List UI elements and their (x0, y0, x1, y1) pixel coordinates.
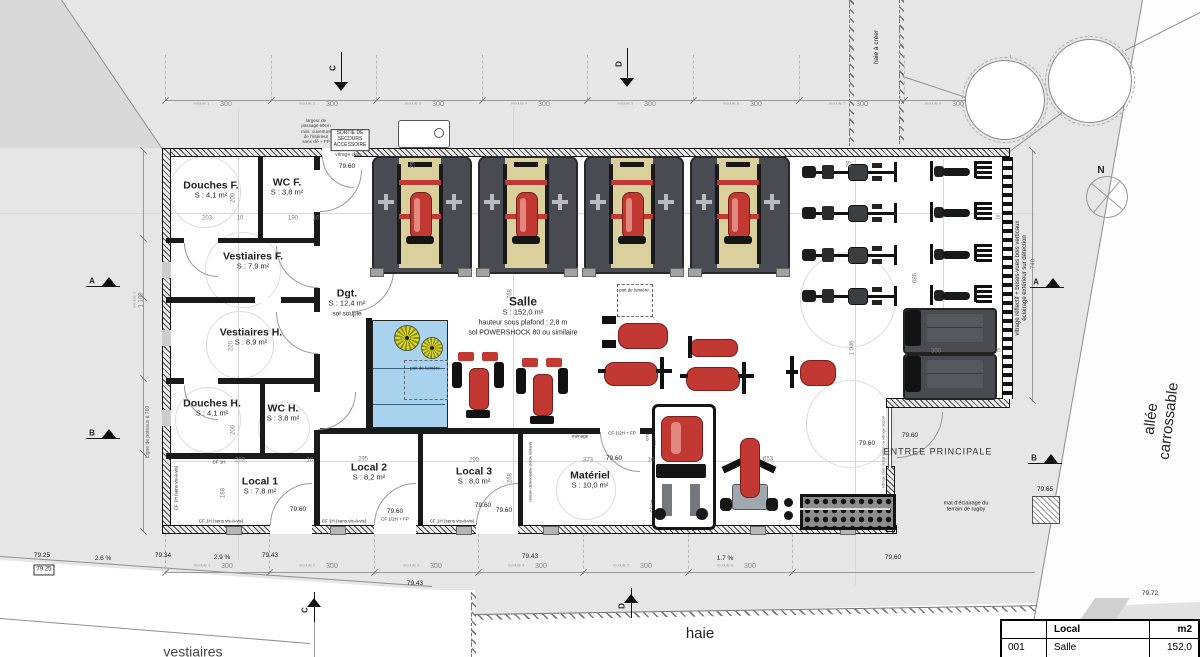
plan-label: 79.60 (387, 508, 403, 516)
rowing-machine-footpad (872, 246, 882, 251)
plan-label: 203 (202, 215, 212, 222)
module-grid-line (688, 534, 690, 574)
room-area: S : 10,0 m² (570, 482, 610, 491)
small-bench-frame (786, 370, 798, 374)
exercise-bike-handle (976, 285, 992, 288)
rowing-machine (822, 248, 834, 262)
room-area: S : 152,0 m² (468, 308, 577, 317)
incline-machine-frame (602, 316, 616, 324)
plan-label: 10 (237, 215, 244, 222)
platform-foot (564, 268, 578, 277)
plan-label: 79.43 (407, 580, 423, 588)
room-area: S : 12,4 m² (329, 300, 366, 309)
plan-label: 10 (307, 457, 314, 464)
weight-bench-pad (732, 198, 738, 232)
flat-bench-frame (656, 369, 672, 373)
legend-row-area: 152,0 (1149, 639, 1192, 656)
plan-label: 79.72 (1142, 590, 1158, 598)
section-line (314, 592, 315, 622)
window-sill (750, 526, 766, 535)
incline-machine-frame (602, 340, 616, 348)
exercise-bike-handle (976, 166, 992, 169)
rowing-machine-flywheel (848, 205, 868, 222)
rowing-machine-front (894, 203, 897, 223)
flat-bench-frame (660, 357, 664, 389)
exercise-bike-handle (976, 207, 992, 210)
leg-press-seat (661, 416, 703, 462)
window-sill (543, 526, 559, 535)
brise-vue-wall (1002, 157, 1013, 399)
legend-header-m2: m2 (1149, 621, 1192, 638)
exercise-bike-frame (942, 292, 970, 300)
module-label: module 3 (403, 564, 419, 569)
room-label: Local 2S : 8,2 m² (351, 461, 387, 482)
room-label: Local 1S : 7,8 m² (242, 475, 278, 496)
flat-bench-pad (604, 362, 658, 386)
plan-label: 188 (220, 488, 227, 498)
treadmill-belt-line (927, 327, 983, 328)
flat-bench-foot (680, 374, 688, 378)
rowing-machine-footpad (872, 163, 882, 168)
room-area: S : 8,2 m² (351, 474, 387, 483)
section-letter: B (89, 428, 95, 437)
power-rack-crossmember (514, 162, 538, 167)
section-marker (307, 598, 321, 607)
section-letter: D (617, 603, 626, 609)
plan-label: 29 (410, 162, 417, 169)
rowing-machine-front (894, 162, 897, 182)
window-sill (226, 526, 242, 535)
module-label: module 4 (511, 102, 527, 107)
press-machine-arm (558, 368, 568, 394)
room-note: sol souple (329, 311, 366, 319)
room-label: MatérielS : 10,0 m² (570, 469, 610, 490)
module-value: 300 (750, 101, 762, 109)
press-machine-arm (516, 368, 526, 394)
rowing-machine-footpad (872, 300, 882, 305)
module-value: 300 (952, 101, 964, 109)
room-area: S : 8,9 m² (220, 339, 282, 348)
rowing-machine (822, 206, 834, 220)
incline-machine-pad (618, 323, 668, 349)
platform-foot (582, 268, 596, 277)
module-grid-line (799, 55, 801, 100)
exercise-bike-frame (942, 168, 970, 176)
module-grid-line (165, 55, 167, 100)
plan-label: haie (686, 625, 714, 643)
plate-tree (664, 194, 668, 210)
plate-tree (558, 194, 562, 210)
squat-machine-wheel (720, 498, 732, 511)
module-grid-line (376, 55, 378, 100)
exercise-bike (930, 202, 933, 222)
plan-label: 79.25 (34, 552, 50, 560)
exercise-bike-handle (976, 217, 992, 220)
module-label: module 5 (613, 564, 629, 569)
platform-foot (776, 268, 790, 277)
plan-label: vitrage réflectif + brises-vues bois ver… (1015, 221, 1029, 336)
module-value: 300 (221, 563, 233, 571)
section-letter: C (328, 65, 337, 71)
exercise-bike-handle (976, 212, 992, 215)
plan-label: cloison démontable (socle isolant) (529, 442, 534, 502)
window-sill (162, 410, 171, 426)
plan-label: CF 1H (461, 429, 474, 434)
module-grid-line (693, 55, 695, 100)
platform-foot (458, 268, 472, 277)
rowing-machine-front (894, 245, 897, 265)
section-marker (1044, 454, 1058, 463)
parasol-center (430, 346, 434, 350)
plan-label: 79.60 (606, 455, 622, 463)
door-opening (255, 297, 281, 303)
section-line (1030, 287, 1064, 288)
plan-label: 79.60 (496, 507, 512, 515)
dimension-line (143, 150, 144, 532)
room-note: sol POWERSHOCK 80 ou similaire (468, 330, 577, 338)
haie-line (475, 605, 1037, 620)
module-label: module 1 (194, 564, 210, 569)
plan-label: vestiaires (163, 644, 222, 657)
press-machine-arm (452, 362, 462, 388)
module-label: module 5 (617, 102, 633, 107)
treadmill-console (905, 356, 921, 392)
exercise-bike-handle (976, 259, 992, 262)
plan-label: 29 (846, 161, 853, 168)
module-label: module 2 (299, 564, 315, 569)
module-value: 300 (640, 563, 652, 571)
leg-press-seat-pad (671, 422, 681, 454)
plan-label: 2.6 % (95, 555, 112, 563)
section-line (86, 438, 120, 439)
module-value: 300 (220, 101, 232, 109)
power-rack-barbell (611, 180, 653, 185)
module-value: 300 (432, 101, 444, 109)
plan-label: N (1097, 165, 1104, 177)
plan-label: CF 1H (212, 459, 225, 464)
kettlebell (784, 498, 793, 507)
ac-unit-fan (434, 128, 444, 138)
rowing-machine-seat (802, 290, 816, 302)
section-letter: A (89, 276, 95, 285)
weight-bench-base (618, 236, 646, 244)
dimension-line (165, 572, 1035, 573)
room-area: S : 4,1 m² (183, 410, 241, 419)
plan-label: 740 (1030, 259, 1037, 269)
plan-label: ENTREE PRINCIPALE (884, 447, 993, 458)
door-opening (184, 378, 218, 384)
flat-bench-pad (686, 367, 740, 391)
door-opening (476, 525, 518, 534)
press-machine-arm (494, 362, 504, 388)
plan-label: largeur de passage 90cm mini. ouverture … (301, 118, 331, 144)
plan-label: 1 046 (849, 340, 856, 355)
exercise-bike-handle (976, 254, 992, 257)
hortensia-circle (1048, 39, 1132, 123)
weight-bench-pad (626, 198, 632, 232)
platform-foot (670, 268, 684, 277)
room-area: S : 8,0 m² (456, 478, 492, 487)
exercise-bike-handle (976, 300, 992, 303)
press-machine-pad (546, 358, 562, 367)
plan-label: 79.43 (522, 553, 538, 561)
interior-wall (518, 434, 523, 525)
rowing-machine-flywheel (848, 288, 868, 305)
plan-label: 686 (912, 273, 919, 283)
module-value: 300 (538, 101, 550, 109)
leg-press-carriage (656, 464, 706, 478)
small-bench-frame (688, 336, 692, 358)
weight-bench-base (512, 236, 540, 244)
module-grid-line (482, 55, 484, 100)
plan-label: puit de lumière (619, 287, 649, 292)
section-line (86, 286, 120, 287)
module-grid-line (374, 534, 376, 574)
squat-machine-body (740, 438, 760, 498)
plan-label: CF 1H (sens vis-à-vis) (322, 518, 367, 523)
boundary-line (0, 618, 310, 644)
press-machine-seat (533, 374, 553, 416)
plan-label: 79.65 (1037, 486, 1053, 494)
window-sill (330, 526, 346, 535)
plate-tree (770, 194, 774, 210)
plan-label: CF 1H (sens vis-à-vis) (430, 518, 475, 523)
plan-label: module 1 (133, 292, 138, 308)
room-label: Douches H.S : 4,1 m² (183, 397, 241, 418)
module-grid-line (478, 534, 480, 574)
plan-label: CF 1/2H + FP (381, 516, 409, 521)
plan-label: 35 (995, 349, 1001, 355)
exercise-bike (930, 161, 933, 181)
plan-label: 79.60 (290, 506, 306, 514)
section-marker (624, 594, 638, 603)
plate-tree (596, 194, 600, 210)
power-rack-crossmember (726, 162, 750, 167)
plan-label: 203 (235, 457, 245, 464)
module-label: module 8 (925, 102, 941, 107)
flat-bench-foot (598, 369, 606, 373)
plan-label: 300 (931, 348, 941, 355)
weight-bench-base (406, 236, 434, 244)
press-machine-base (530, 416, 554, 424)
power-rack-barbell (399, 180, 441, 185)
module-grid-line (587, 55, 589, 100)
squat-machine-wheel (766, 498, 778, 511)
boundary-line (903, 76, 968, 98)
section-letter: A (1033, 277, 1039, 286)
treadmill-console (905, 310, 921, 346)
plan-label: 200 (230, 425, 237, 435)
module-label: module 3 (405, 102, 421, 107)
window-sill (456, 526, 472, 535)
module-value: 300 (744, 563, 756, 571)
room-area: S : 7,9 m² (223, 263, 283, 272)
room-label: Vestiaires F.S : 7,9 m² (223, 250, 283, 271)
rowing-machine-footpad (872, 287, 882, 292)
plan-label: 35 (995, 216, 1001, 222)
interior-wall (258, 157, 263, 238)
treadmill-belt-line (927, 373, 983, 374)
interior-wall (418, 434, 423, 525)
section-marker (620, 78, 634, 87)
boundary-line (61, 0, 162, 149)
terrace-line (373, 404, 445, 405)
plan-label: CF 1H (552, 429, 565, 434)
leg-press-wheel (654, 508, 666, 520)
exercise-bike-handle (976, 202, 992, 205)
section-marker (1046, 278, 1060, 287)
section-marker (334, 82, 348, 91)
press-machine-pad (522, 358, 538, 367)
section-letter: D (614, 61, 623, 67)
plan-label: CF 1H (356, 429, 369, 434)
exercise-bike-handle (976, 171, 992, 174)
plan-label: 268 (507, 473, 514, 483)
room-area: S : 3,8 m² (271, 189, 304, 198)
plan-label: 10 (313, 215, 320, 222)
module-label: module 2 (299, 102, 315, 107)
platform-foot (476, 268, 490, 277)
kettlebell (784, 511, 793, 520)
dumbbell-rack-shelf (800, 508, 890, 510)
plan-label: GTL (646, 433, 651, 441)
interior-wall (260, 384, 265, 453)
exercise-bike-handle (976, 161, 992, 164)
hortensia-circle (965, 60, 1045, 140)
dimension-line (1032, 150, 1033, 402)
plan-label: CF 1/2H + FP (608, 430, 636, 435)
door-opening (374, 525, 416, 534)
exercise-bike-handle (976, 244, 992, 247)
rowing-machine-footpad (872, 204, 882, 209)
window-sill (162, 262, 171, 278)
plan-label: mat d'éclairage du terrain de rugby (944, 501, 989, 514)
plate-tree (452, 194, 456, 210)
haie-line (471, 592, 476, 657)
legend-header-local: Local (1054, 621, 1144, 638)
room-area: S : 3,8 m² (267, 415, 300, 424)
treadmill-belt (927, 360, 983, 388)
plan-label: 2.9 % (214, 554, 231, 562)
plan-label: 79.25 (33, 564, 54, 575)
plan-label: SORTIE DE SECOURS ACCESSOIRE (331, 129, 370, 151)
weight-bench-base (724, 236, 752, 244)
module-grid-line (792, 534, 794, 574)
rowing-machine-seat (802, 249, 816, 261)
plan-label: 190 (288, 215, 298, 222)
section-letter: C (300, 607, 309, 613)
plan-label: TGBT (653, 438, 658, 449)
window-sill (162, 330, 171, 346)
plan-label: CF 1H (sens vis-à-vis) (173, 466, 178, 511)
module-label: module 6 (723, 102, 739, 107)
plan-label: CF 1H (sens vis-à-vis) (199, 518, 244, 523)
exercise-bike-handle (976, 295, 992, 298)
rugby-mast (1032, 496, 1060, 524)
module-value: 300 (326, 563, 338, 571)
leg-press-wheel (696, 508, 708, 520)
rowing-machine (822, 289, 834, 303)
legend-row-number: 001 (1008, 639, 1044, 656)
module-grid-line (271, 55, 273, 100)
section-line (1028, 463, 1062, 464)
floor-plan: largeur de passage 90cm mini. ouverture … (0, 0, 1200, 657)
press-machine-seat (469, 368, 489, 410)
rowing-machine-front (894, 286, 897, 306)
legend-row-name: Salle (1054, 639, 1144, 656)
plan-label: 1 100 (138, 292, 145, 307)
module-value: 300 (535, 563, 547, 571)
rowing-machine-flywheel (848, 247, 868, 264)
plan-label: Ligne de poteaux à 760 (146, 406, 152, 458)
module-label: module 1 (193, 102, 209, 107)
exterior-wall (162, 148, 1010, 157)
plan-label: 79.60 (902, 432, 918, 440)
treadmill-belt (927, 314, 983, 342)
legend-divider (1046, 621, 1047, 657)
exercise-bike-handle (976, 176, 992, 179)
rowing-machine-footpad (872, 259, 882, 264)
platform-foot (370, 268, 384, 277)
module-value: 300 (326, 101, 338, 109)
plan-label: 10 (648, 457, 655, 464)
plan-label: 79.34 (155, 552, 171, 560)
flat-bench-frame (742, 362, 746, 394)
plan-label: puit de lumière (410, 365, 440, 370)
module-label: module 6 (717, 564, 733, 569)
exercise-bike-handle (976, 290, 992, 293)
legend-table: Local m2 001 Salle 152,0 (1000, 619, 1200, 657)
plate-tree (702, 194, 706, 210)
rowing-machine-seat (802, 207, 816, 219)
plan-label: 79.60 (859, 440, 875, 448)
small-bench-pad (690, 339, 738, 357)
plan-label: vitrage clair (335, 153, 361, 159)
power-rack-barbell (717, 180, 759, 185)
module-grid-line (583, 534, 585, 574)
room-label: Douches F.S : 4,1 m² (183, 179, 238, 200)
plan-label: 79,60 (885, 554, 901, 562)
weight-bench-pad (414, 198, 420, 232)
press-machine-pad (458, 352, 474, 361)
section-letter: B (1031, 453, 1037, 462)
plan-label: haie à créer (873, 30, 881, 64)
rowing-machine (822, 165, 834, 179)
room-label: Vestiaires H.S : 8,9 m² (220, 326, 282, 347)
rowing-machine-footpad (872, 176, 882, 181)
module-value: 300 (644, 101, 656, 109)
room-name: Salle (468, 294, 577, 308)
section-line (631, 588, 632, 618)
weight-bench-pad (520, 198, 526, 232)
plan-label: CF 1H (649, 499, 654, 512)
exercise-bike-frame (942, 251, 970, 259)
module-value: 300 (430, 563, 442, 571)
parasol-center (405, 336, 409, 340)
module-label: module 4 (508, 564, 524, 569)
power-rack-crossmember (620, 162, 644, 167)
interior-wall (166, 297, 316, 303)
plan-label: ménage (572, 433, 588, 438)
room-note: hauteur sous plafond : 2,8 m (468, 319, 577, 327)
plan-label: allée carrossable (1138, 379, 1183, 460)
room-label: Local 3S : 8,0 m² (456, 465, 492, 486)
room-label: WC F.S : 3,8 m² (271, 176, 304, 197)
room-label: Dgt.S : 12,4 m²sol souple (329, 288, 366, 319)
platform-foot (688, 268, 702, 277)
haie-line (849, 0, 854, 146)
press-machine-base (466, 410, 490, 418)
